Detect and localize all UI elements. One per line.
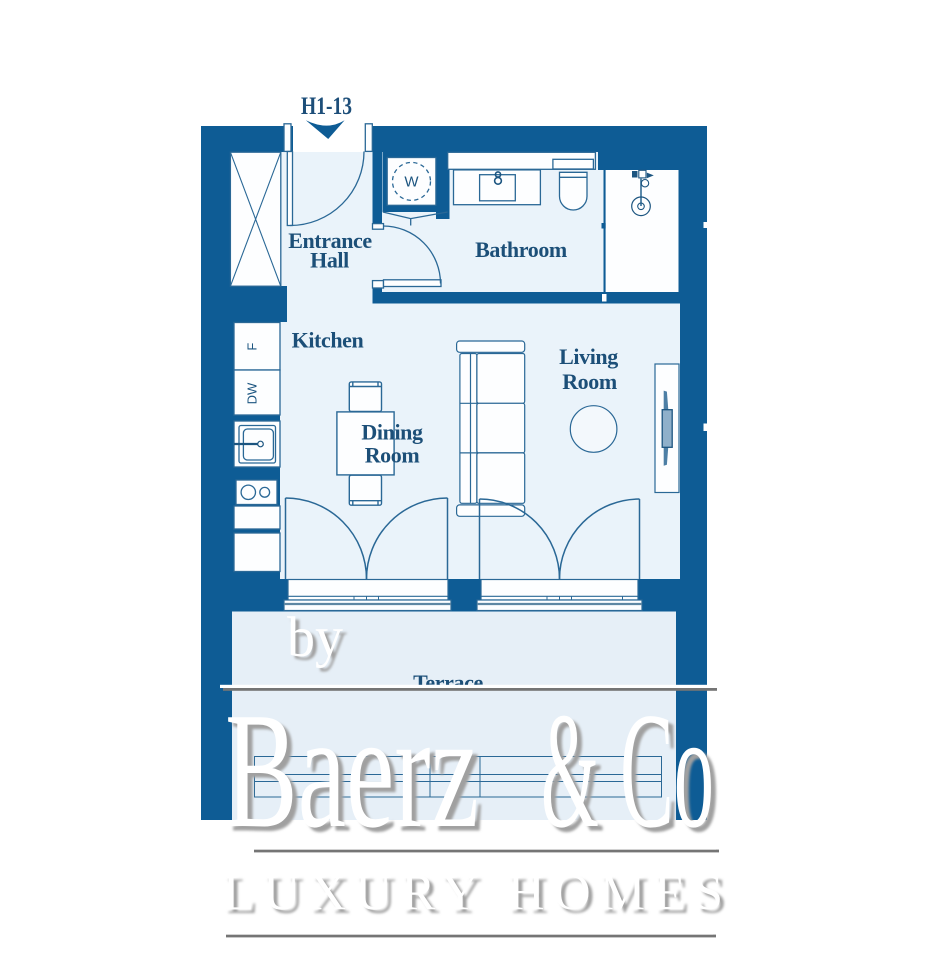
svg-text:W: W — [404, 174, 419, 191]
svg-text:&: & — [541, 678, 599, 862]
svg-text:Baerz: Baerz — [225, 678, 479, 862]
svg-text:Kitchen: Kitchen — [292, 328, 364, 353]
svg-text:DW: DW — [245, 382, 260, 404]
svg-text:Co: Co — [620, 678, 714, 862]
svg-text:Hall: Hall — [310, 248, 349, 273]
svg-text:H1-13: H1-13 — [301, 93, 352, 120]
svg-text:Room: Room — [562, 369, 617, 394]
svg-text:F: F — [245, 343, 260, 351]
svg-text:Bathroom: Bathroom — [475, 237, 567, 262]
svg-text:Living: Living — [559, 344, 618, 369]
svg-text:by: by — [287, 606, 343, 669]
svg-text:Room: Room — [365, 442, 420, 467]
svg-text:Dining: Dining — [361, 419, 423, 444]
